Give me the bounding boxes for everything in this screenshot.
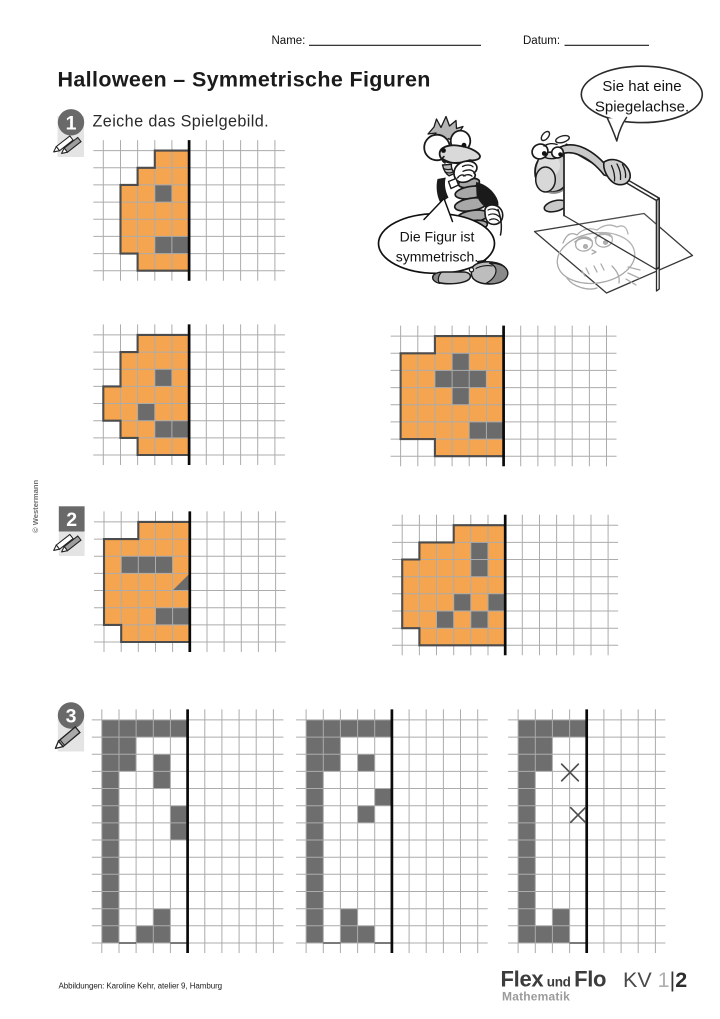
svg-text:Datum:: Datum: <box>523 35 560 47</box>
svg-text:© Westermann: © Westermann <box>31 479 40 533</box>
svg-text:1: 1 <box>66 112 77 134</box>
svg-text:Spiegelachse.: Spiegelachse. <box>595 99 689 116</box>
svg-text:symmetrisch.: symmetrisch. <box>396 249 478 265</box>
svg-text:Name:: Name: <box>272 35 306 47</box>
svg-text:Die Figur ist: Die Figur ist <box>400 229 475 245</box>
svg-text:3: 3 <box>66 706 77 728</box>
svg-text:Halloween – Symmetrische Figur: Halloween – Symmetrische Figuren <box>58 68 431 92</box>
svg-text:Flex und Flo: Flex und Flo <box>501 967 607 992</box>
svg-text:Zeiche das Spielgebild.: Zeiche das Spielgebild. <box>93 113 270 131</box>
svg-text:2: 2 <box>66 509 77 531</box>
svg-text:Sie hat eine: Sie hat eine <box>602 78 681 95</box>
svg-text:KV 1|2: KV 1|2 <box>623 968 687 992</box>
svg-text:Mathematik: Mathematik <box>502 990 570 1004</box>
svg-text:Abbildungen: Karoline Kehr, at: Abbildungen: Karoline Kehr, atelier 9, H… <box>59 982 223 991</box>
